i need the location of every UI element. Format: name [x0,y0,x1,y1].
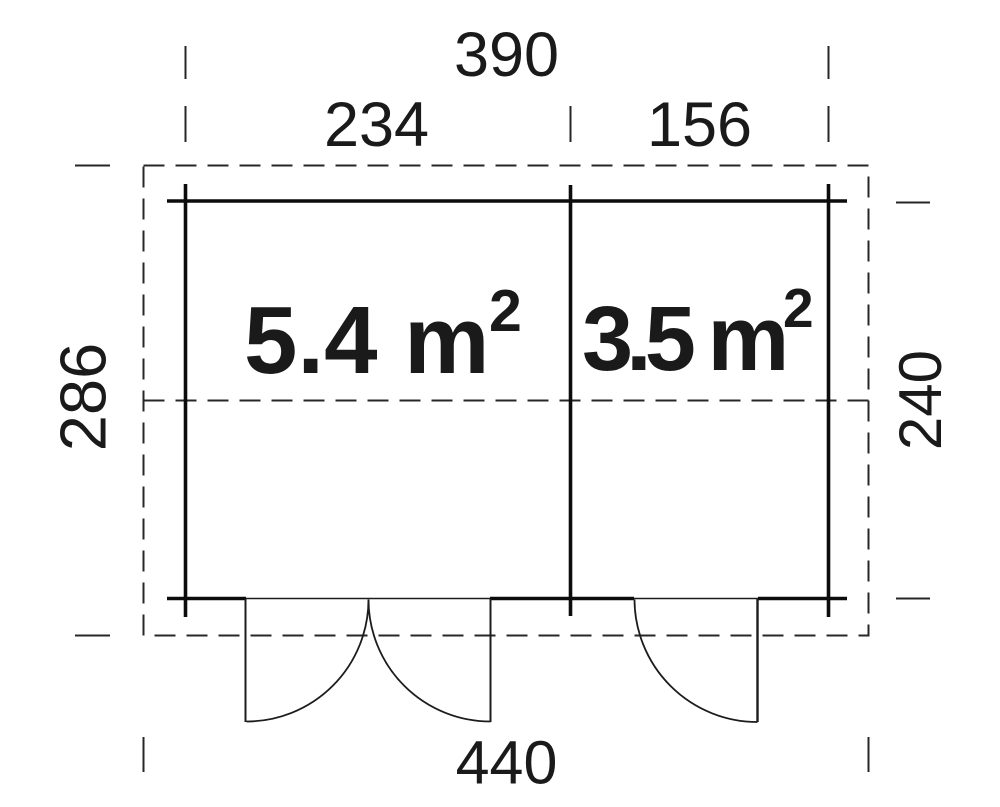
svg-text:156: 156 [647,90,752,160]
svg-text:390: 390 [454,20,559,90]
svg-text:3.5 m: 3.5 m [582,288,784,390]
svg-text:2: 2 [783,277,814,339]
svg-text:286: 286 [47,343,120,451]
svg-text:440: 440 [456,729,558,797]
svg-text:240: 240 [887,350,954,450]
svg-text:2: 2 [489,278,522,344]
svg-text:234: 234 [324,90,429,160]
svg-text:5.4 m: 5.4 m [244,287,489,394]
